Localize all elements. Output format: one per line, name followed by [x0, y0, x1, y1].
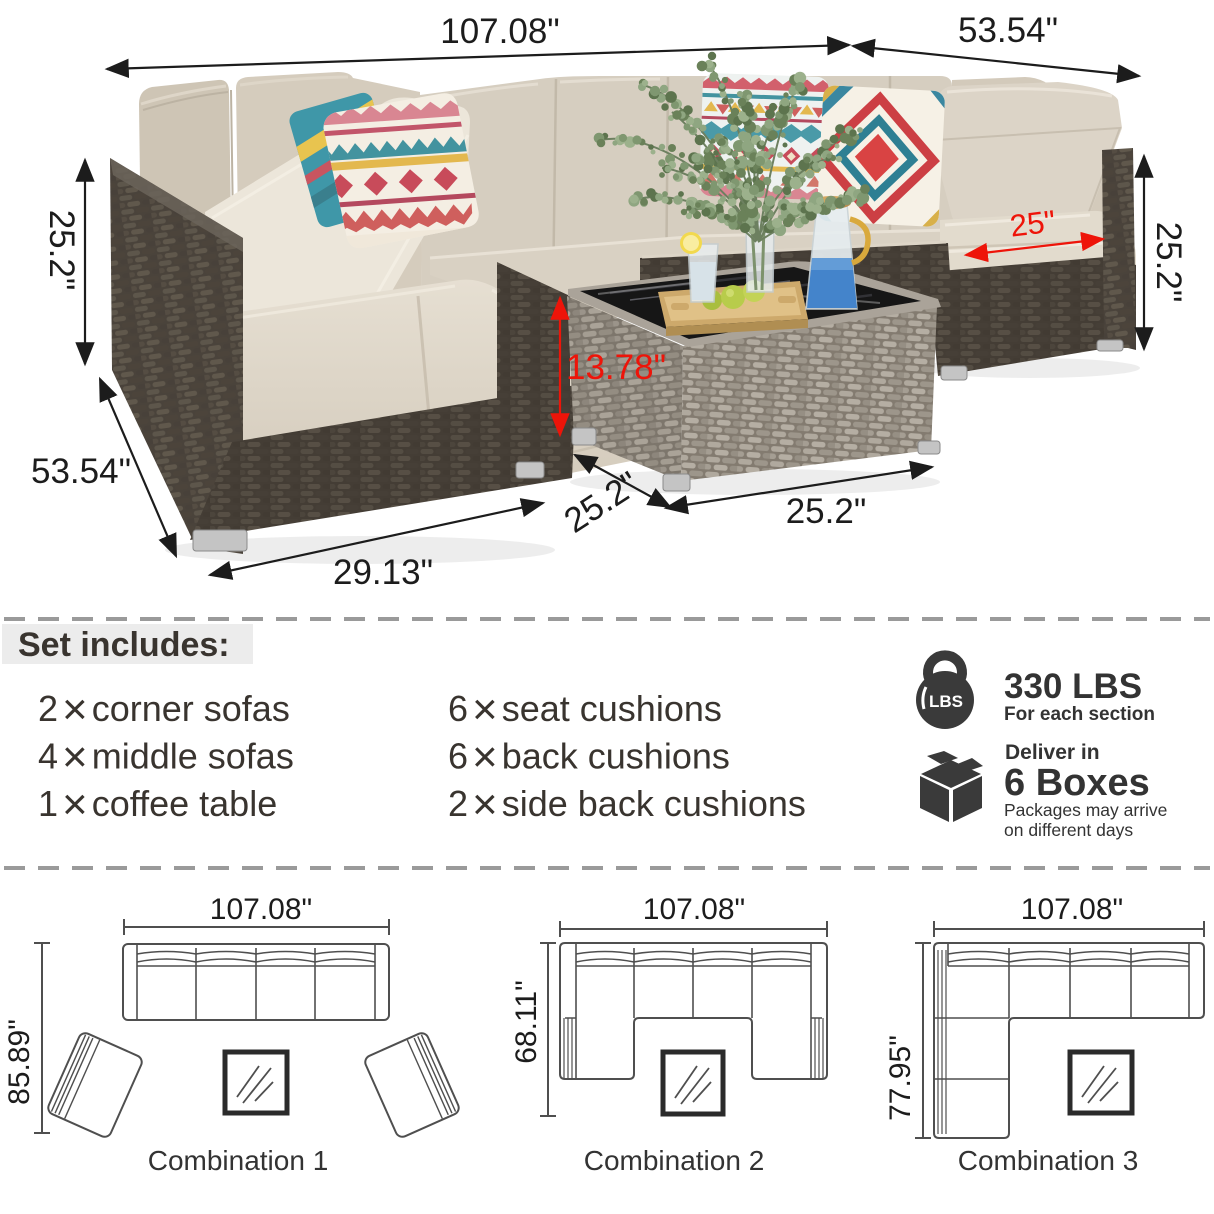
svg-text:1×coffee table: 1×coffee table [38, 780, 277, 829]
svg-text:Combination 1: Combination 1 [148, 1145, 329, 1176]
svg-text:25": 25" [1008, 203, 1057, 243]
svg-text:53.54": 53.54" [958, 11, 1058, 50]
svg-text:107.08": 107.08" [1021, 893, 1123, 926]
svg-text:13.78": 13.78" [566, 348, 666, 387]
svg-text:107.08": 107.08" [440, 12, 559, 51]
svg-text:53.54": 53.54" [31, 452, 131, 491]
svg-text:2×side back cushions: 2×side back cushions [448, 780, 806, 829]
svg-text:LBS: LBS [929, 692, 963, 711]
svg-text:6×back cushions: 6×back cushions [448, 733, 730, 782]
svg-text:Set includes:: Set includes: [18, 626, 230, 664]
svg-text:25.2": 25.2" [42, 210, 81, 291]
svg-text:Deliver in: Deliver in [1005, 741, 1100, 764]
svg-text:Combination 3: Combination 3 [958, 1145, 1139, 1176]
svg-text:Packages may arrive: Packages may arrive [1004, 800, 1167, 820]
svg-text:330 LBS: 330 LBS [1004, 667, 1142, 706]
svg-text:For each section: For each section [1004, 704, 1155, 725]
svg-text:25.2": 25.2" [786, 492, 867, 531]
svg-text:107.08": 107.08" [643, 893, 745, 926]
svg-text:29.13": 29.13" [333, 553, 433, 592]
svg-text:25.2": 25.2" [1149, 222, 1188, 303]
svg-text:4×middle sofas: 4×middle sofas [38, 733, 294, 782]
svg-text:77.95": 77.95" [884, 1035, 917, 1121]
svg-text:85.89": 85.89" [3, 1019, 36, 1105]
svg-text:Combination 2: Combination 2 [584, 1145, 765, 1176]
svg-text:6×seat cushions: 6×seat cushions [448, 685, 722, 734]
svg-text:2×corner sofas: 2×corner sofas [38, 685, 290, 734]
svg-text:107.08": 107.08" [210, 893, 312, 926]
svg-text:6 Boxes: 6 Boxes [1004, 762, 1150, 804]
svg-text:on different days: on different days [1004, 820, 1133, 840]
svg-text:68.11": 68.11" [510, 980, 543, 1064]
